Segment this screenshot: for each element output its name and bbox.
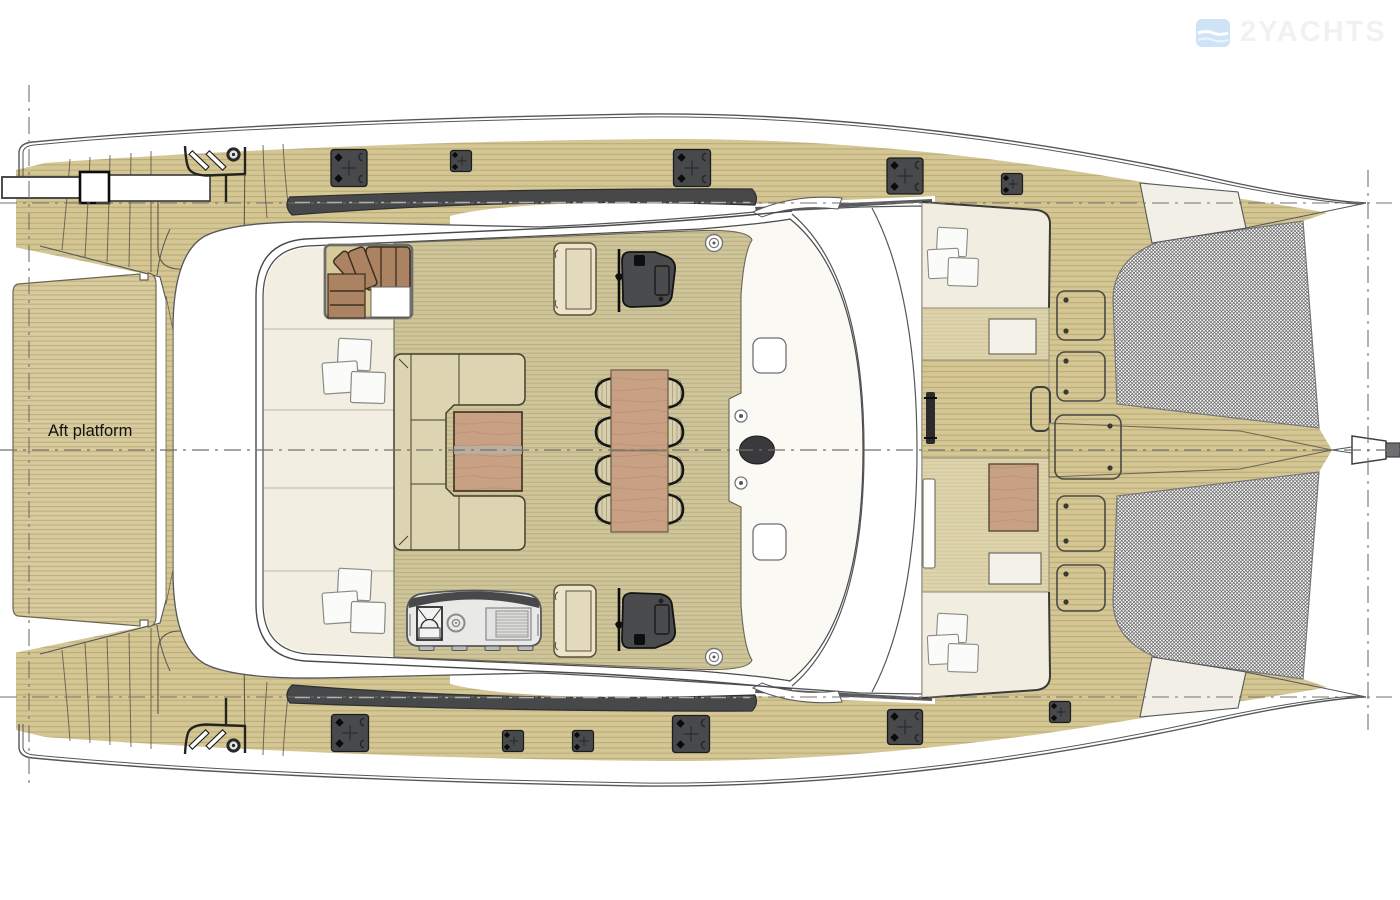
svg-text:2YACHTS: 2YACHTS [1240,16,1387,48]
svg-text:Aft platform: Aft platform [48,422,132,440]
